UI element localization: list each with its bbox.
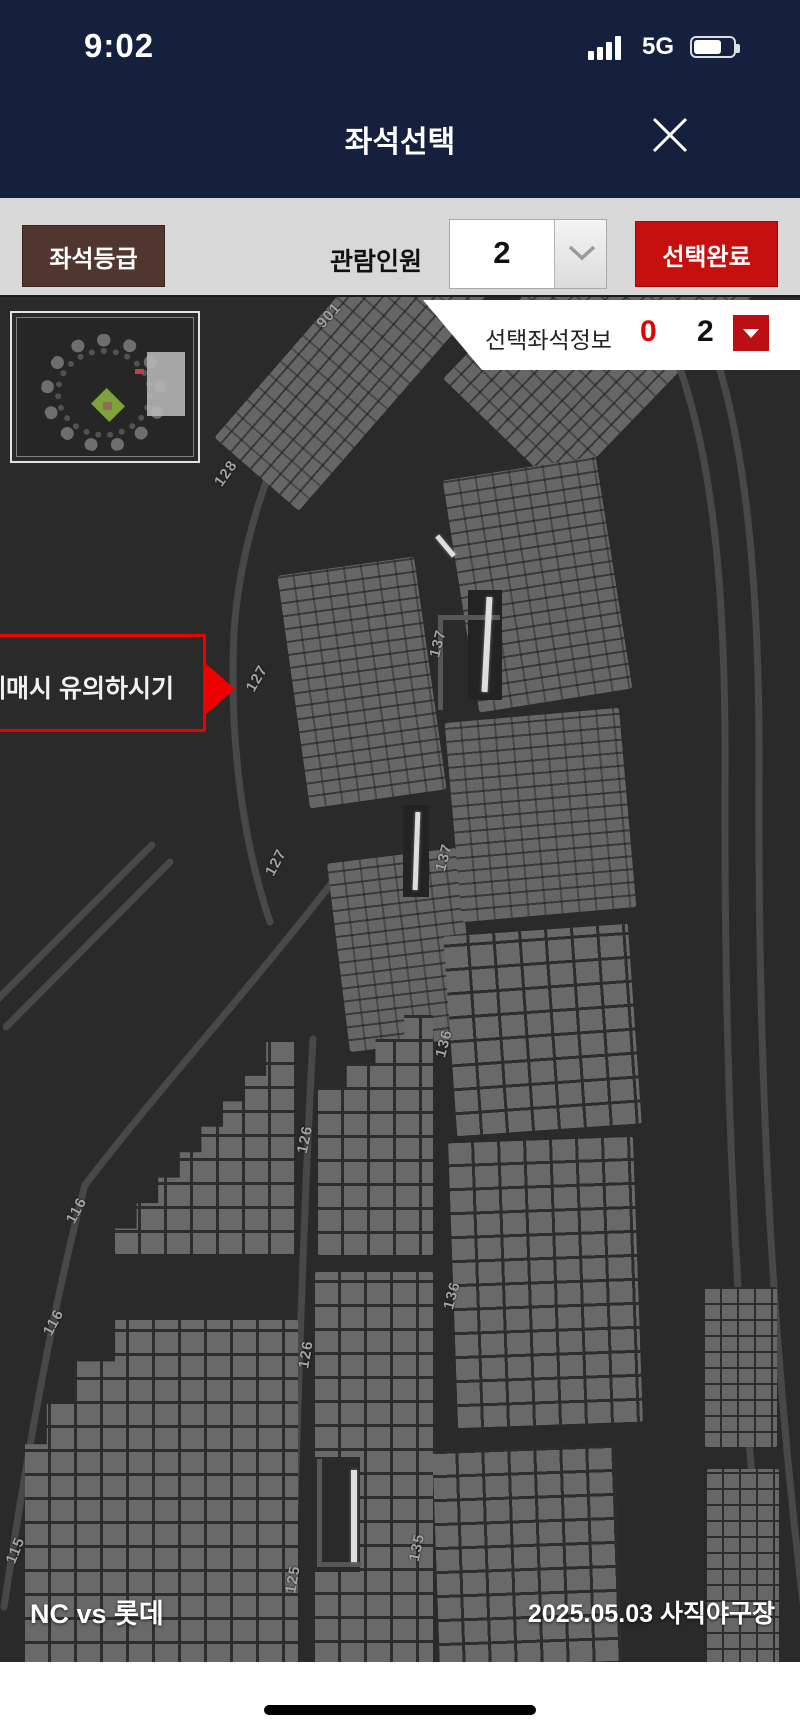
seat-block-137[interactable] <box>445 708 637 922</box>
callout-arrow-icon <box>204 662 235 716</box>
seat-block-136[interactable] <box>443 924 642 1136</box>
selection-complete-button[interactable]: 선택완료 <box>635 221 778 287</box>
minimap-current-marker <box>135 369 144 374</box>
gate-wall <box>317 1459 322 1567</box>
signal-bars-icon <box>588 36 634 60</box>
triangle-down-icon <box>743 329 759 338</box>
home-indicator[interactable] <box>264 1705 536 1715</box>
viewer-count-label: 관람인원 <box>330 242 422 278</box>
selected-count: 0 <box>640 315 657 349</box>
minimap-inner <box>16 317 194 457</box>
toolbar: 좌석등급 관람인원 2 선택완료 <box>0 198 800 295</box>
status-time: 9:02 <box>84 27 154 65</box>
date-venue: 2025.05.03 사직야구장 <box>528 1594 775 1630</box>
header-bar: 9:02 5G 좌석선택 <box>0 0 800 198</box>
seat-block-136[interactable] <box>448 1137 643 1428</box>
total-count: 2 <box>697 315 714 349</box>
chevron-down-icon <box>554 220 606 288</box>
network-type-label: 5G <box>642 33 674 61</box>
battery-icon <box>690 36 736 58</box>
stair-marker <box>351 1470 357 1562</box>
minimap-viewport-indicator[interactable] <box>147 352 185 416</box>
infield-marker <box>103 402 112 410</box>
notice-callout-text: 예매시 유의하시기 <box>0 669 197 705</box>
notice-callout: 예매시 유의하시기 <box>0 634 206 732</box>
selected-seat-info-label: 선택좌석정보 <box>485 321 612 355</box>
stadium-minimap[interactable] <box>10 311 200 463</box>
viewer-count-select[interactable]: 2 <box>449 219 607 289</box>
seat-block[interactable] <box>707 1469 779 1662</box>
seat-block[interactable] <box>705 1287 777 1447</box>
close-x-icon[interactable] <box>648 113 692 157</box>
seat-info-dropdown-button[interactable] <box>733 315 769 351</box>
match-title: NC vs 롯데 <box>30 1592 164 1631</box>
gate-wall <box>317 1562 361 1567</box>
seat-grade-button[interactable]: 좌석등급 <box>22 225 165 287</box>
seat-map[interactable]: 901 128 127 127 137 137 136 136 135 126 … <box>0 295 800 1662</box>
home-indicator-area <box>0 1662 800 1731</box>
viewer-count-value: 2 <box>450 220 554 288</box>
